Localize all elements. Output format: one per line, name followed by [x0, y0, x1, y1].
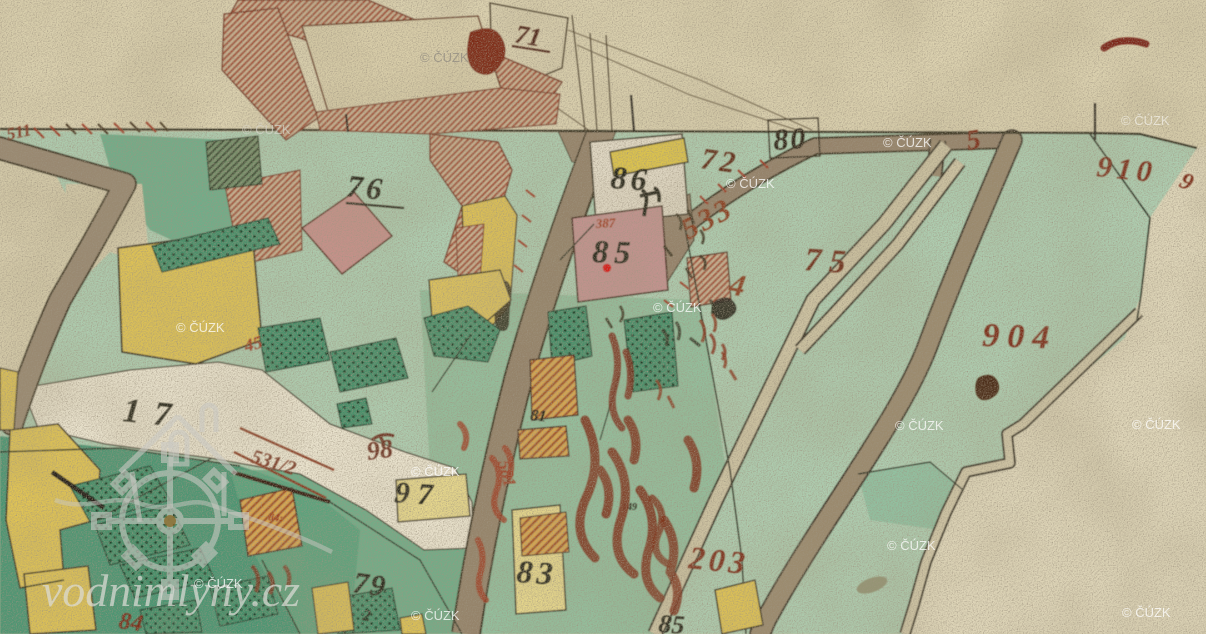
svg-text:© ČÚZK: © ČÚZK — [883, 135, 932, 150]
svg-text:© ČÚZK: © ČÚZK — [726, 176, 775, 191]
svg-text:© ČÚZK: © ČÚZK — [653, 300, 702, 315]
svg-text:vodnimlyny.cz: vodnimlyny.cz — [42, 565, 300, 616]
svg-text:© ČÚZK: © ČÚZK — [194, 576, 243, 591]
svg-text:© ČÚZK: © ČÚZK — [411, 464, 460, 479]
svg-text:© ČÚZK: © ČÚZK — [887, 538, 936, 553]
svg-text:© ČÚZK: © ČÚZK — [895, 418, 944, 433]
svg-text:© ČÚZK: © ČÚZK — [1121, 113, 1170, 128]
svg-text:© ČÚZK: © ČÚZK — [1122, 605, 1171, 620]
svg-text:© ČÚZK: © ČÚZK — [411, 608, 460, 623]
svg-text:© ČÚZK: © ČÚZK — [176, 320, 225, 335]
svg-text:© ČÚZK: © ČÚZK — [420, 50, 469, 65]
svg-text:© ČÚZK: © ČÚZK — [242, 122, 291, 137]
svg-text:© ČÚZK: © ČÚZK — [1132, 417, 1181, 432]
